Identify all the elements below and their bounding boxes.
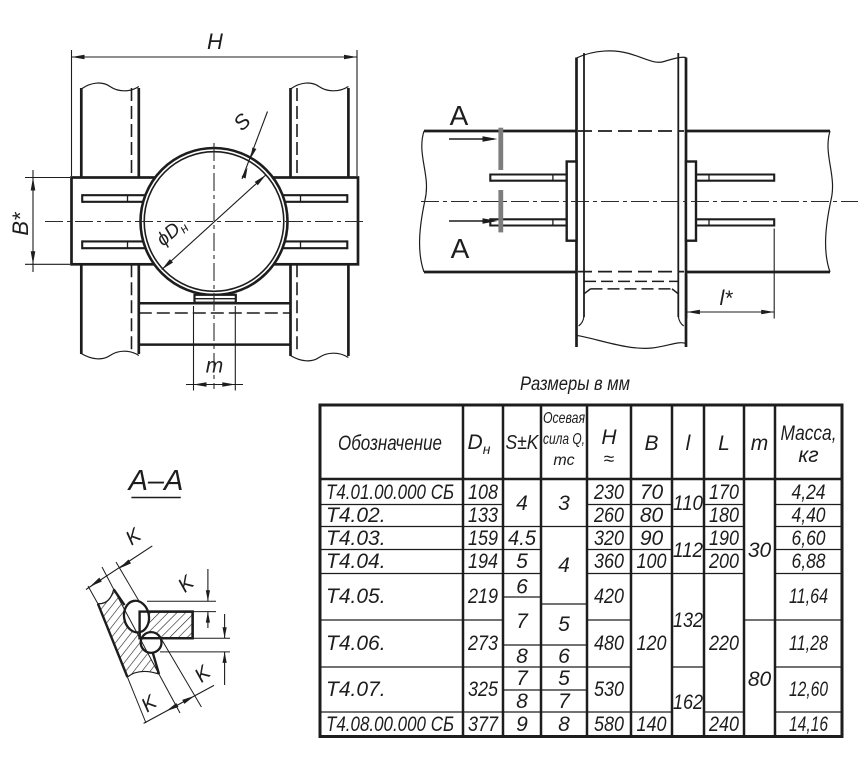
svg-text:230: 230 bbox=[593, 481, 624, 504]
svg-text:120: 120 bbox=[637, 632, 667, 655]
svg-text:12,60: 12,60 bbox=[789, 678, 828, 701]
svg-text:530: 530 bbox=[594, 678, 624, 701]
svg-text:70: 70 bbox=[640, 481, 664, 504]
svg-text:А–А: А–А bbox=[127, 465, 184, 497]
svg-text:320: 320 bbox=[594, 527, 624, 550]
svg-text:6,88: 6,88 bbox=[792, 550, 826, 573]
svg-text:377: 377 bbox=[468, 713, 499, 736]
svg-text:4: 4 bbox=[558, 554, 570, 577]
svg-text:112: 112 bbox=[673, 539, 703, 562]
svg-text:110: 110 bbox=[673, 492, 703, 515]
svg-text:132: 132 bbox=[673, 609, 703, 632]
svg-text:11,28: 11,28 bbox=[789, 632, 828, 655]
svg-text:30: 30 bbox=[748, 539, 772, 562]
svg-text:480: 480 bbox=[594, 632, 624, 655]
svg-text:7: 7 bbox=[516, 667, 529, 690]
svg-text:420: 420 bbox=[594, 585, 624, 608]
svg-text:Т4.04.: Т4.04. bbox=[326, 550, 386, 573]
svg-text:9: 9 bbox=[516, 713, 528, 736]
svg-text:тс: тс bbox=[553, 452, 574, 469]
svg-text:194: 194 bbox=[468, 550, 498, 573]
svg-text:219: 219 bbox=[467, 585, 498, 608]
svg-text:240: 240 bbox=[708, 713, 739, 736]
svg-text:80: 80 bbox=[640, 504, 664, 527]
svg-text:170: 170 bbox=[709, 481, 739, 504]
svg-text:4.5: 4.5 bbox=[508, 527, 536, 550]
svg-text:90: 90 bbox=[640, 527, 664, 550]
svg-text:Т4.05.: Т4.05. bbox=[326, 585, 386, 608]
svg-text:B: B bbox=[644, 432, 658, 455]
svg-text:14,16: 14,16 bbox=[789, 713, 828, 736]
svg-text:кг: кг bbox=[798, 444, 818, 467]
svg-text:11,64: 11,64 bbox=[789, 585, 828, 608]
svg-text:325: 325 bbox=[468, 678, 498, 701]
svg-text:L: L bbox=[718, 432, 730, 455]
svg-text:3: 3 bbox=[558, 492, 570, 515]
svg-text:Т4.03.: Т4.03. bbox=[326, 527, 386, 550]
svg-text:133: 133 bbox=[468, 504, 498, 527]
svg-text:140: 140 bbox=[637, 713, 667, 736]
svg-text:4: 4 bbox=[516, 492, 528, 515]
svg-text:S±K: S±K bbox=[506, 432, 540, 454]
svg-text:сила Q,: сила Q, bbox=[543, 431, 585, 448]
svg-text:8: 8 bbox=[516, 645, 528, 668]
svg-text:80: 80 bbox=[748, 668, 772, 691]
svg-text:162: 162 bbox=[673, 691, 703, 714]
svg-text:H: H bbox=[601, 426, 617, 449]
svg-text:Т4.06.: Т4.06. bbox=[326, 632, 386, 655]
svg-text:190: 190 bbox=[709, 527, 739, 550]
svg-text:А: А bbox=[451, 233, 470, 264]
svg-text:Т4.02.: Т4.02. bbox=[326, 504, 386, 527]
svg-text:180: 180 bbox=[709, 504, 739, 527]
svg-text:Осевая: Осевая bbox=[543, 410, 585, 427]
svg-text:4,40: 4,40 bbox=[792, 504, 826, 527]
svg-text:159: 159 bbox=[468, 527, 498, 550]
svg-text:l*: l* bbox=[720, 287, 734, 310]
svg-text:8: 8 bbox=[558, 713, 570, 736]
svg-text:273: 273 bbox=[467, 632, 498, 655]
svg-text:100: 100 bbox=[637, 550, 667, 573]
svg-text:6: 6 bbox=[516, 576, 528, 599]
svg-text:≈: ≈ bbox=[604, 449, 614, 470]
svg-text:260: 260 bbox=[593, 504, 624, 527]
svg-text:7: 7 bbox=[516, 610, 529, 633]
svg-text:6,60: 6,60 bbox=[792, 527, 826, 550]
svg-text:5: 5 bbox=[516, 550, 528, 573]
svg-text:m: m bbox=[751, 432, 769, 455]
svg-text:6: 6 bbox=[558, 645, 570, 668]
svg-text:5: 5 bbox=[558, 667, 570, 690]
svg-text:А: А bbox=[450, 100, 469, 131]
svg-text:108: 108 bbox=[468, 481, 498, 504]
svg-text:B*: B* bbox=[8, 211, 33, 236]
svg-text:Масса,: Масса, bbox=[781, 422, 837, 445]
svg-text:200: 200 bbox=[708, 550, 739, 573]
svg-text:4,24: 4,24 bbox=[792, 481, 826, 504]
svg-text:360: 360 bbox=[594, 550, 624, 573]
svg-text:220: 220 bbox=[708, 632, 739, 655]
svg-text:8: 8 bbox=[516, 690, 528, 713]
svg-text:Обозначение: Обозначение bbox=[338, 432, 442, 455]
svg-text:5: 5 bbox=[558, 613, 570, 636]
svg-text:Т4.01.00.000 СБ: Т4.01.00.000 СБ bbox=[326, 481, 454, 504]
svg-text:Т4.07.: Т4.07. bbox=[326, 678, 386, 701]
svg-text:Т4.08.00.000 СБ: Т4.08.00.000 СБ bbox=[326, 713, 454, 736]
svg-text:H: H bbox=[207, 29, 223, 54]
svg-text:580: 580 bbox=[594, 713, 624, 736]
svg-text:7: 7 bbox=[558, 690, 571, 713]
svg-text:Размеры в мм: Размеры в мм bbox=[520, 374, 630, 395]
